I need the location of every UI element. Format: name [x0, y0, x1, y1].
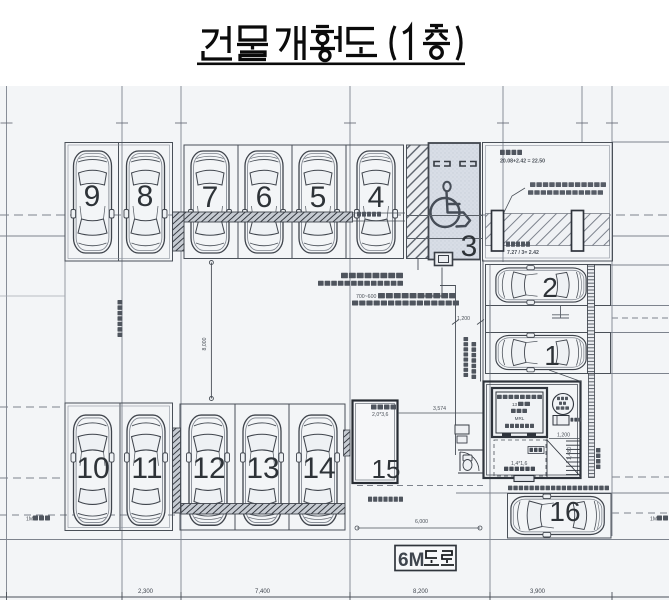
svg-text:2,300: 2,300	[138, 589, 154, 595]
svg-text:1,4*1,6: 1,4*1,6	[511, 461, 528, 467]
svg-text:8,000: 8,000	[202, 337, 208, 350]
svg-text:11: 11	[131, 452, 162, 485]
svg-text:6: 6	[256, 181, 273, 214]
svg-text:MRL: MRL	[515, 416, 525, 421]
svg-text:7.27 / 3= 2.42: 7.27 / 3= 2.42	[507, 250, 539, 256]
svg-text:3: 3	[461, 230, 478, 263]
svg-text:8,200: 8,200	[413, 589, 429, 595]
svg-text:2,0*3,6: 2,0*3,6	[372, 412, 389, 418]
svg-text:1M: 1M	[650, 517, 657, 523]
svg-text:2: 2	[352, 213, 355, 219]
svg-text:8: 8	[137, 180, 154, 213]
svg-text:13: 13	[512, 402, 518, 407]
svg-text:7: 7	[202, 181, 219, 214]
svg-text:3,574: 3,574	[433, 406, 446, 412]
svg-text:15: 15	[372, 454, 401, 484]
svg-text:2: 2	[542, 272, 558, 303]
svg-text:20.08+2.42 = 22.50: 20.08+2.42 = 22.50	[500, 159, 545, 165]
svg-text:1: 1	[544, 340, 560, 371]
svg-text:1,200: 1,200	[557, 433, 570, 439]
svg-text:1M: 1M	[26, 517, 33, 523]
svg-text:9: 9	[84, 180, 101, 213]
svg-text:1,200: 1,200	[457, 316, 470, 322]
svg-text:6,000: 6,000	[415, 519, 428, 525]
svg-text:7,400: 7,400	[255, 589, 271, 595]
svg-text:13: 13	[246, 452, 279, 485]
svg-text:10: 10	[76, 452, 109, 485]
svg-text:16: 16	[549, 496, 580, 527]
svg-text:4: 4	[368, 181, 385, 214]
svg-text:5: 5	[310, 181, 327, 214]
svg-text:3,900: 3,900	[530, 589, 546, 595]
svg-text:6M: 6M	[398, 550, 424, 571]
svg-text:14: 14	[302, 452, 335, 485]
svg-text:700~600: 700~600	[356, 294, 376, 300]
svg-text:1,480: 1,480	[567, 447, 573, 460]
svg-text:12: 12	[192, 452, 225, 485]
